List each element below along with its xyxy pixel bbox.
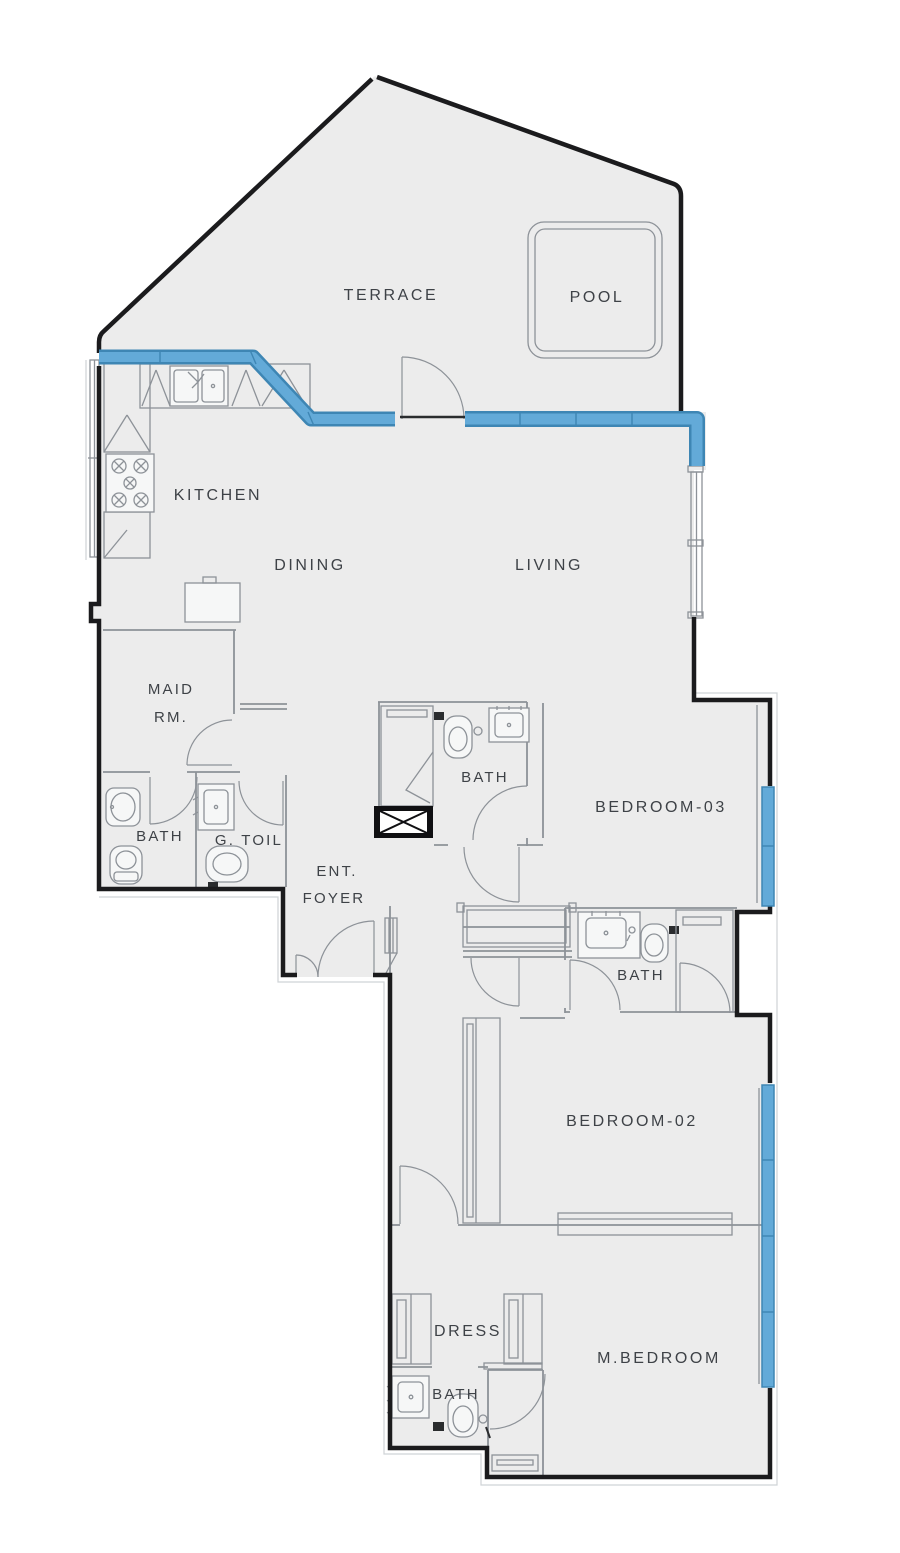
- guest-toilet-sink: [193, 784, 234, 830]
- label-kitchen: KITCHEN: [174, 487, 262, 504]
- label-living: LIVING: [515, 557, 583, 574]
- label-foyer-1: ENT.: [316, 863, 357, 880]
- kitchen-stove: [106, 454, 154, 512]
- floor-plan: TERRACE POOL KITCHEN DINING LIVING MAID …: [0, 0, 900, 1553]
- label-bath2: BATH: [617, 967, 665, 984]
- label-foyer-2: FOYER: [303, 890, 366, 907]
- dining-cabinet: [185, 577, 240, 622]
- floor-plan-svg: TERRACE POOL KITCHEN DINING LIVING MAID …: [0, 0, 900, 1553]
- label-guest-toilet: G. TOIL: [215, 832, 283, 849]
- master-bath-sink: [387, 1376, 429, 1418]
- bath3-sink: [489, 706, 529, 742]
- maid-bath-sink: [106, 788, 140, 826]
- label-dining: DINING: [274, 557, 346, 574]
- label-master-bath: BATH: [432, 1386, 480, 1403]
- maid-bath-toilet: [110, 846, 142, 884]
- label-terrace: TERRACE: [344, 287, 439, 304]
- kitchen-sink: [170, 366, 228, 406]
- label-master-bedroom: M.BEDROOM: [597, 1350, 721, 1367]
- label-pool: POOL: [570, 289, 625, 306]
- label-maid-bath: BATH: [136, 828, 184, 845]
- bath2-sink: [578, 911, 640, 958]
- shaft-box: [374, 806, 433, 838]
- label-maid-2: RM.: [154, 709, 188, 726]
- label-maid-1: MAID: [148, 681, 194, 698]
- label-bedroom2: BEDROOM-02: [566, 1113, 698, 1130]
- label-bath3: BATH: [461, 769, 509, 786]
- label-dress: DRESS: [434, 1323, 502, 1340]
- label-bedroom3: BEDROOM-03: [595, 799, 727, 816]
